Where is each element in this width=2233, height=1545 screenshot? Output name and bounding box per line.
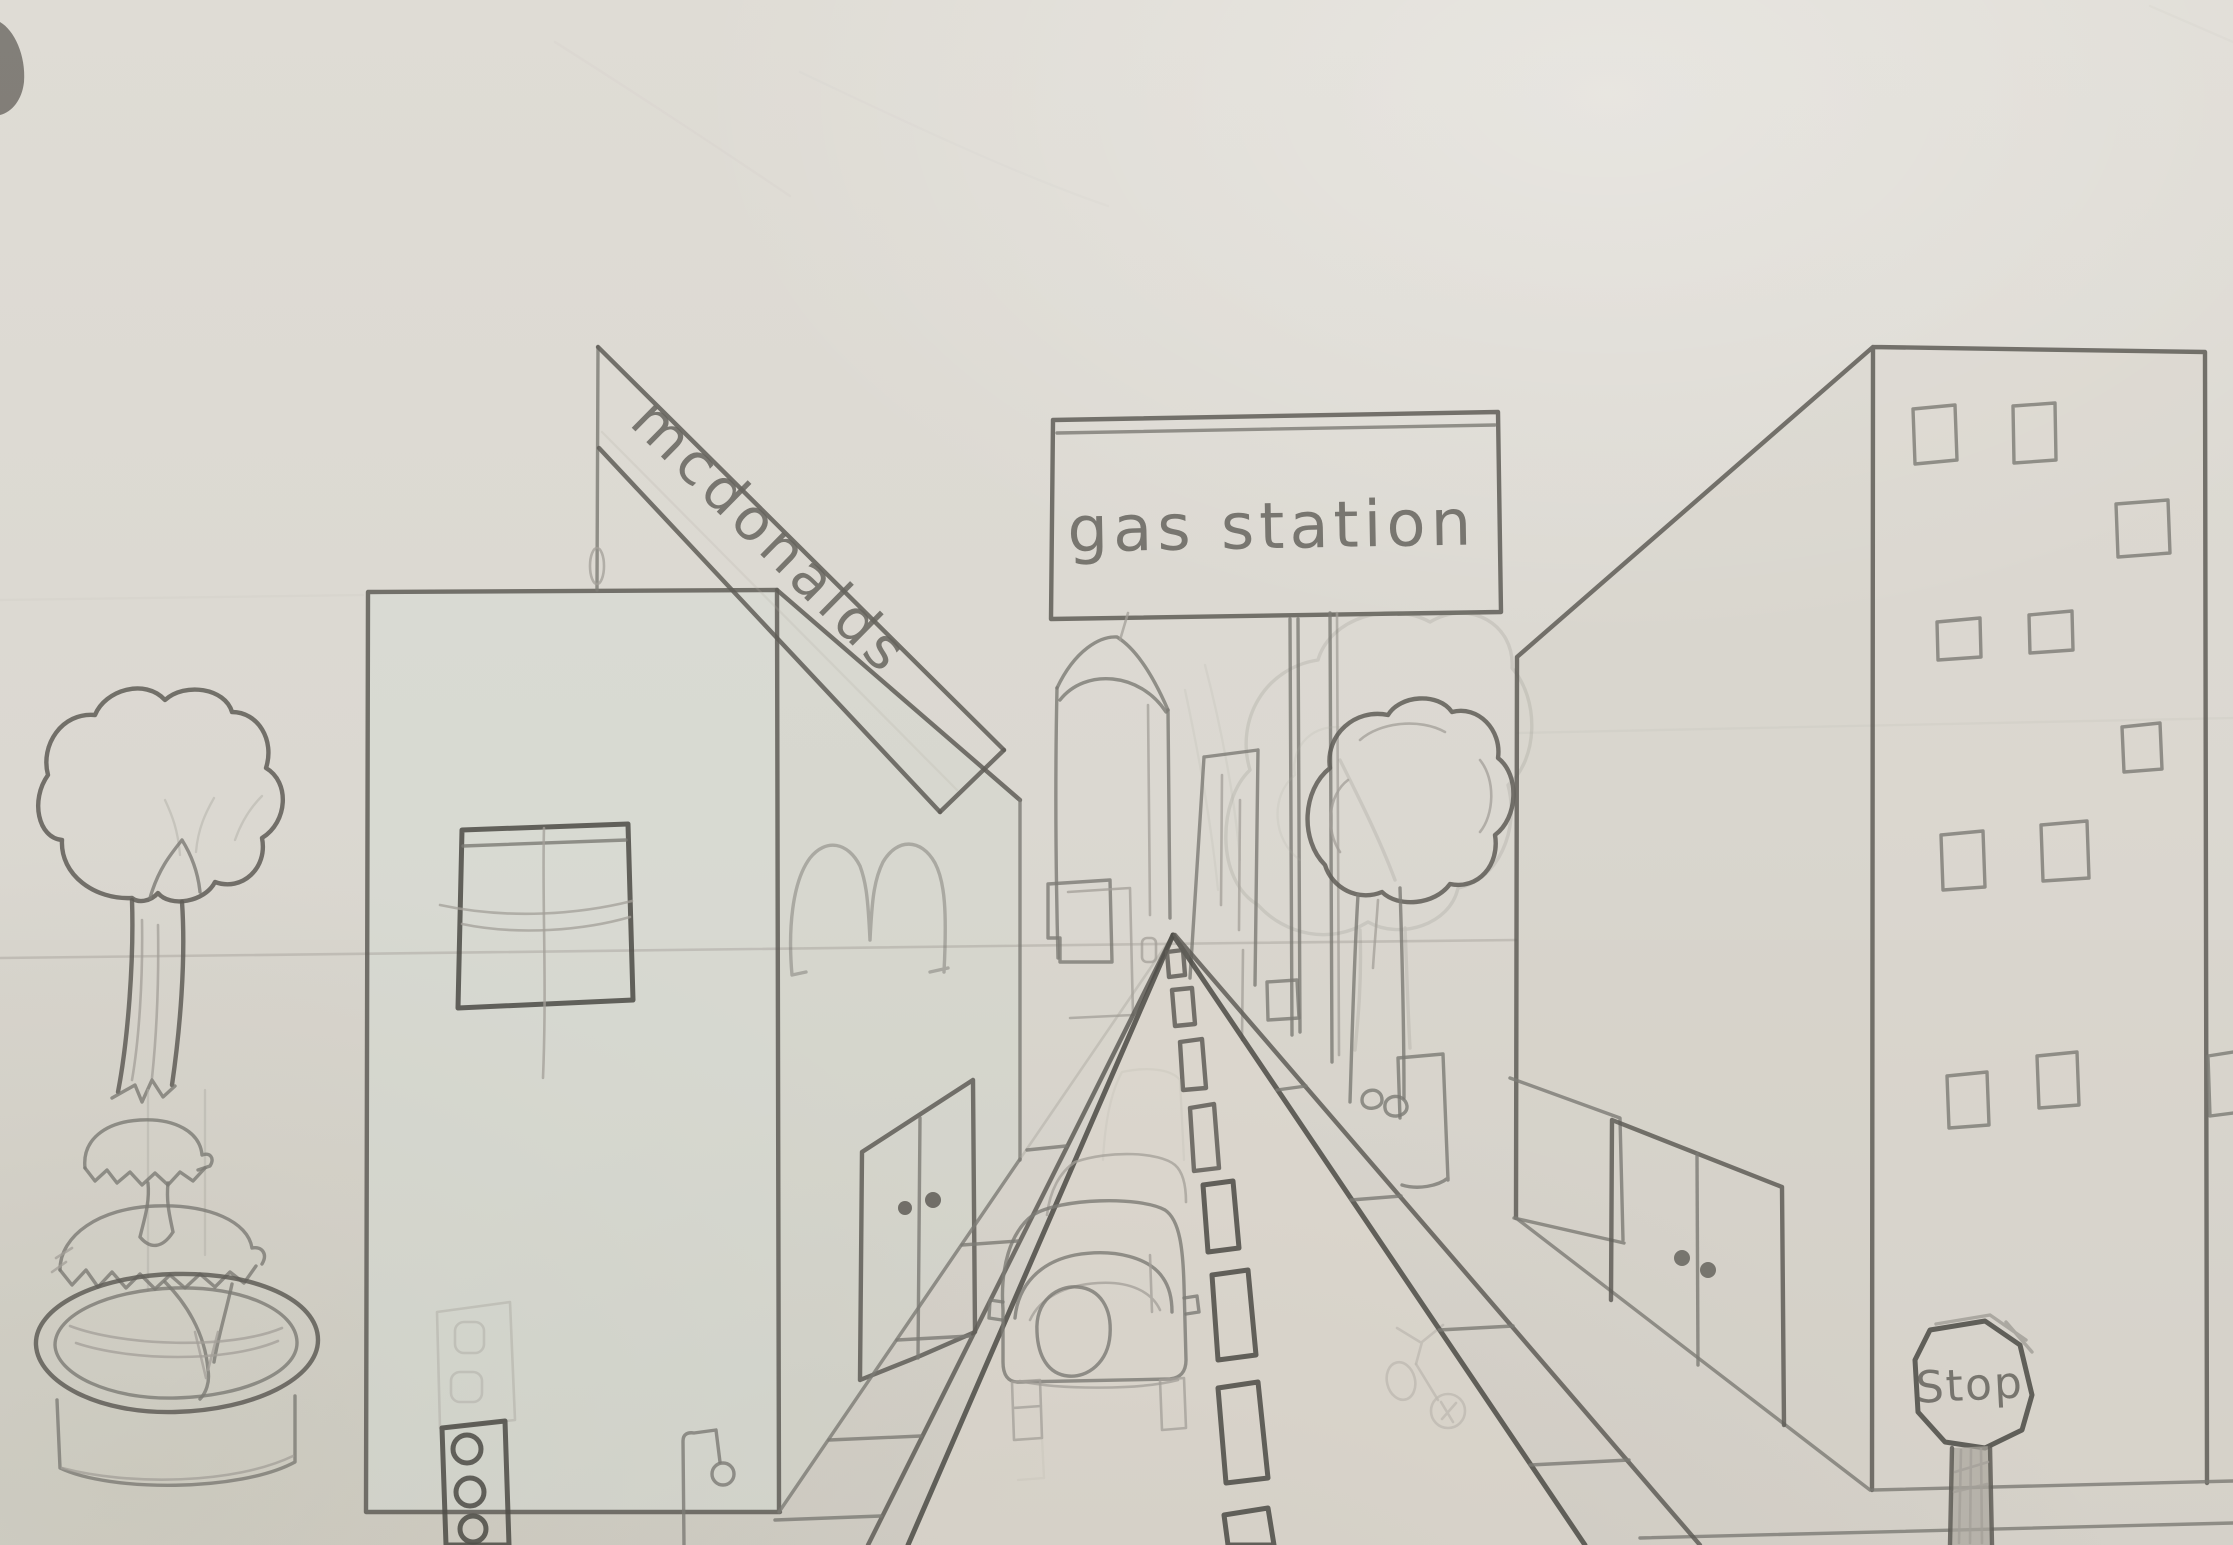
pencil-drawing-photo: mcdonalds gas station [0, 0, 2233, 1545]
door-knob [925, 1192, 941, 1208]
edge-smudge [0, 22, 24, 115]
door-knob [1674, 1250, 1690, 1266]
door-knob [1700, 1262, 1716, 1278]
street-drawing: mcdonalds gas station [0, 0, 2233, 1545]
gas-station-sign-text: gas station [1067, 486, 1477, 567]
stop-sign-text: Stop [1914, 1357, 2025, 1414]
obelisk-tower [1056, 613, 1240, 958]
door-knob [898, 1201, 912, 1215]
